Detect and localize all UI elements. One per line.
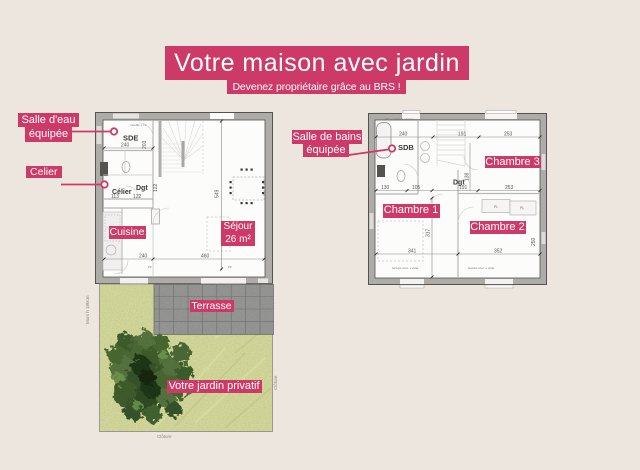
svg-text:Murs h 180cm: Murs h 180cm bbox=[85, 295, 90, 324]
svg-text:WC + meuble vasque: WC + meuble vasque bbox=[385, 117, 414, 121]
svg-text:fenetre coul. + volet: fenetre coul. + volet bbox=[468, 266, 494, 270]
svg-text:fenetre coul. + volet: fenetre coul. + volet bbox=[392, 266, 418, 270]
svg-text:Clôture: Clôture bbox=[157, 434, 172, 439]
svg-text:meuble + LL: meuble + LL bbox=[130, 123, 147, 127]
svg-text:Clôture: Clôture bbox=[273, 375, 278, 390]
svg-text:PF: PF bbox=[148, 265, 152, 269]
svg-text:PF: PF bbox=[228, 265, 232, 269]
